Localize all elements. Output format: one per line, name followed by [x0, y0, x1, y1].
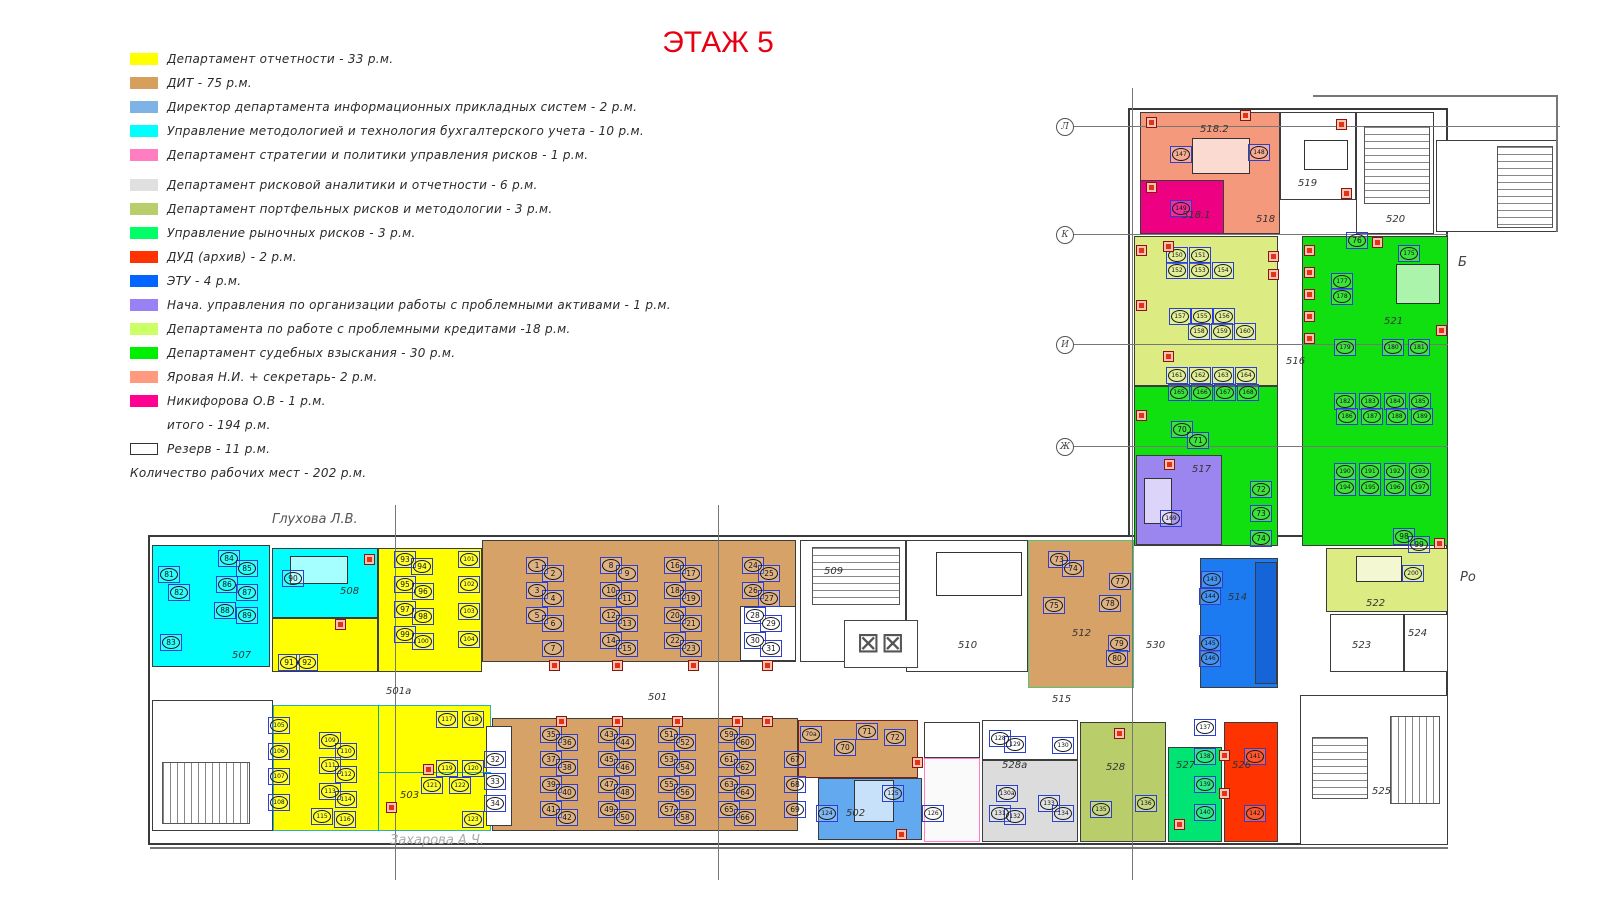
workstation-chip: 71	[1189, 434, 1207, 447]
workstation-chip: 42	[558, 811, 576, 824]
workstation-chip: 87	[238, 586, 256, 599]
workstation-chip: 11	[618, 592, 636, 605]
printer-marker	[423, 764, 434, 775]
meeting-table	[1356, 556, 1402, 582]
workstation-chip: 10	[602, 584, 620, 597]
legend-swatch	[130, 125, 158, 137]
meeting-table	[1396, 264, 1440, 304]
workstation-chip: 1	[528, 559, 546, 572]
workstation-chip: 82	[170, 586, 188, 599]
plan-label: 512	[1072, 628, 1091, 639]
workstation-chip: 99	[396, 628, 414, 641]
plan-label: 503	[400, 790, 419, 801]
workstation-chip: 53	[660, 753, 678, 766]
workstation-chip: 161	[1168, 369, 1186, 382]
workstation-chip: 148	[1250, 146, 1268, 159]
workstation-chip: 145	[1201, 637, 1219, 650]
plan-label: 520	[1386, 214, 1405, 225]
plan-label: 508	[340, 586, 359, 597]
legend-label: Управление методологией и технология бух…	[167, 124, 644, 138]
workstation-chip: 75	[1045, 599, 1063, 612]
workstation-chip: 80	[1108, 652, 1126, 665]
workstation-chip: 38	[558, 761, 576, 774]
legend-item: Департамент стратегии и политики управле…	[130, 148, 671, 162]
workstation-chip: 158	[1190, 325, 1208, 338]
room-126-room	[924, 758, 980, 842]
workstation-chip: 81	[160, 568, 178, 581]
plan-label: Захарова А.Ч.	[390, 833, 484, 848]
workstation-chip: 104	[460, 633, 478, 646]
meeting-table	[936, 552, 1022, 596]
printer-marker	[1136, 245, 1147, 256]
printer-marker	[762, 660, 773, 671]
workstation-chip: 196	[1386, 481, 1404, 494]
workstation-chip: 168	[1239, 386, 1257, 399]
workstation-chip: 85	[238, 562, 256, 575]
workstation-chip: 57	[660, 803, 678, 816]
elevator: ⊠⊠	[844, 620, 918, 668]
workstation-chip: 26	[744, 584, 762, 597]
workstation-chip: 63	[720, 778, 738, 791]
workstation-chip: 19	[682, 592, 700, 605]
workstation-chip: 167	[1216, 386, 1234, 399]
workstation-chip: 97	[396, 603, 414, 616]
workstation-chip: 118	[464, 713, 482, 726]
workstation-chip: 37	[542, 753, 560, 766]
legend-item: ДИТ - 75 р.м.	[130, 76, 671, 90]
workstation-chip: 169	[1162, 512, 1180, 525]
workstation-chip: 157	[1171, 310, 1189, 323]
plan-label: 523	[1352, 640, 1371, 651]
plan-label: 525	[1372, 786, 1391, 797]
legend-item: Яровая Н.И. + секретарь- 2 р.м.	[130, 370, 671, 384]
printer-marker	[556, 716, 567, 727]
workstation-chip: 109	[321, 734, 339, 747]
workstation-chip: 50	[616, 811, 634, 824]
workstation-chip: 133	[1040, 797, 1058, 810]
workstation-chip: 96	[414, 585, 432, 598]
workstation-chip: 74	[1252, 532, 1270, 545]
workstation-chip: 193	[1411, 465, 1429, 478]
legend-label: ДУД (архив) - 2 р.м.	[167, 250, 297, 264]
legend-label: Нача. управления по организации работы с…	[167, 298, 671, 312]
workstation-chip: 33	[486, 775, 504, 788]
workstation-chip: 154	[1214, 264, 1232, 277]
plan-label: 517	[1192, 464, 1211, 475]
printer-marker	[386, 802, 397, 813]
legend-swatch	[130, 323, 158, 335]
workstation-chip: 72	[886, 731, 904, 744]
workstation-chip: 132	[1006, 810, 1024, 823]
legend-label: Количество рабочих мест - 202 р.м.	[130, 466, 366, 480]
legend-item: Управление методологией и технология бух…	[130, 124, 671, 138]
workstation-chip: 51	[660, 728, 678, 741]
workstation-chip: 15	[618, 642, 636, 655]
printer-marker	[1146, 182, 1157, 193]
workstation-chip: 163	[1214, 369, 1232, 382]
plan-label: 528а	[1002, 760, 1027, 771]
workstation-chip: 108	[270, 796, 288, 809]
workstation-chip: 70	[836, 741, 854, 754]
workstation-chip: 111	[321, 759, 339, 772]
legend-label: Директор департамента информационных при…	[167, 100, 637, 114]
workstation-chip: 4	[544, 592, 562, 605]
workstation-chip: 31	[762, 642, 780, 655]
legend-item: Резерв - 11 р.м.	[130, 442, 671, 456]
workstation-chip: 93	[396, 553, 414, 566]
floor-plan-page: ЭТАЖ 5 Департамент отчетности - 33 р.м.Д…	[0, 0, 1600, 900]
workstation-chip: 190	[1336, 465, 1354, 478]
workstation-chip: 147	[1172, 148, 1190, 161]
workstation-chip: 39	[542, 778, 560, 791]
workstation-chip: 49	[600, 803, 618, 816]
legend-label: Яровая Н.И. + секретарь- 2 р.м.	[167, 370, 378, 384]
workstation-chip: 182	[1336, 395, 1354, 408]
workstation-chip: 62	[736, 761, 754, 774]
plan-label: Б	[1458, 255, 1467, 270]
printer-marker	[1336, 119, 1347, 130]
printer-marker	[1114, 728, 1125, 739]
legend-item: Управление рыночных рисков - 3 р.м.	[130, 226, 671, 240]
workstation-chip: 155	[1193, 310, 1211, 323]
legend-swatch	[130, 251, 158, 263]
workstation-chip: 45	[600, 753, 618, 766]
plan-label: 518	[1256, 214, 1275, 225]
workstation-chip: 29	[762, 617, 780, 630]
plan-label: 514	[1228, 592, 1247, 603]
legend-label: Департамента по работе с проблемными кре…	[167, 322, 571, 336]
workstation-chip: 187	[1363, 410, 1381, 423]
workstation-chip: 130	[1054, 739, 1072, 752]
legend-label: Департамент стратегии и политики управле…	[167, 148, 588, 162]
room-yellow-bottom	[273, 705, 491, 831]
workstation-chip: 143	[1203, 573, 1221, 586]
legend-swatch	[130, 419, 158, 431]
legend-label: ДИТ - 75 р.м.	[167, 76, 252, 90]
plan-label: 521	[1384, 316, 1403, 327]
workstation-chip: 35	[542, 728, 560, 741]
workstation-chip: 54	[676, 761, 694, 774]
printer-marker	[335, 619, 346, 630]
printer-marker	[1163, 241, 1174, 252]
printer-marker	[672, 716, 683, 727]
printer-marker	[1240, 110, 1251, 121]
workstation-chip: 102	[460, 578, 478, 591]
workstation-chip: 27	[760, 592, 778, 605]
printer-marker	[1268, 269, 1279, 280]
stairs	[1390, 716, 1440, 804]
workstation-chip: 73	[1252, 507, 1270, 520]
workstation-chip: 188	[1388, 410, 1406, 423]
printer-marker	[1268, 251, 1279, 262]
workstation-chip: 107	[270, 770, 288, 783]
plan-label: 518.1	[1182, 210, 1211, 221]
plan-label: 526	[1232, 760, 1251, 771]
workstation-chip: 20	[666, 609, 684, 622]
legend-label: Никифорова О.В - 1 р.м.	[167, 394, 326, 408]
legend-swatch	[130, 149, 158, 161]
plan-label: 510	[958, 640, 977, 651]
workstation-chip: 67	[786, 753, 804, 766]
workstation-chip: 180	[1384, 341, 1402, 354]
printer-marker	[1136, 300, 1147, 311]
workstation-chip: 136	[1137, 797, 1155, 810]
workstation-chip: 22	[666, 634, 684, 647]
workstation-chip: 138	[1196, 750, 1214, 763]
legend: Департамент отчетности - 33 р.м.ДИТ - 75…	[130, 52, 671, 490]
workstation-chip: 115	[313, 810, 331, 823]
printer-marker	[1219, 750, 1230, 761]
workstation-chip: 78	[1101, 597, 1119, 610]
workstation-chip: 101	[460, 553, 478, 566]
workstation-chip: 178	[1333, 290, 1351, 303]
workstation-chip: 103	[460, 605, 478, 618]
workstation-chip: 116	[336, 813, 354, 826]
stairs	[1364, 126, 1430, 204]
legend-swatch	[130, 299, 158, 311]
workstation-chip: 179	[1336, 341, 1354, 354]
legend-label: Департамент рисковой аналитики и отчетно…	[167, 178, 538, 192]
workstation-chip: 100	[414, 635, 432, 648]
legend-item: Департамент рисковой аналитики и отчетно…	[130, 178, 671, 192]
printer-marker	[364, 554, 375, 565]
workstation-chip: 24	[744, 559, 762, 572]
workstation-chip: 166	[1193, 386, 1211, 399]
workstation-chip: 120	[464, 762, 482, 775]
printer-marker	[912, 757, 923, 768]
plan-label: 519	[1298, 178, 1317, 189]
workstation-chip: 94	[413, 560, 431, 573]
wall-line	[1313, 95, 1558, 97]
workstation-chip: 181	[1410, 341, 1428, 354]
workstation-chip: 142	[1246, 807, 1264, 820]
printer-marker	[1136, 410, 1147, 421]
grid-axis-label: Ж	[1056, 438, 1074, 456]
workstation-chip: 117	[438, 713, 456, 726]
legend-item: Департамента по работе с проблемными кре…	[130, 322, 671, 336]
workstation-chip: 126	[924, 807, 942, 820]
workstation-chip: 153	[1191, 264, 1209, 277]
wall-line	[718, 505, 719, 880]
legend-item: Департамент портфельных рисков и методол…	[130, 202, 671, 216]
workstation-chip: 122	[451, 779, 469, 792]
workstation-chip: 134	[1054, 807, 1072, 820]
printer-marker	[1304, 245, 1315, 256]
printer-marker	[1163, 351, 1174, 362]
workstation-chip: 123	[464, 813, 482, 826]
plan-label: 530	[1146, 640, 1165, 651]
workstation-chip: 68	[786, 778, 804, 791]
workstation-chip: 21	[682, 617, 700, 630]
workstation-chip: 156	[1215, 310, 1233, 323]
wall-line	[378, 705, 379, 831]
workstation-chip: 175	[1400, 247, 1418, 260]
workstation-chip: 98	[414, 610, 432, 623]
workstation-chip: 47	[600, 778, 618, 791]
plan-label: 518.2	[1200, 124, 1229, 135]
room-514b	[1255, 562, 1277, 684]
workstation-chip: 60	[736, 736, 754, 749]
workstation-chip: 70а	[802, 728, 820, 741]
workstation-chip: 55	[660, 778, 678, 791]
workstation-chip: 76	[1348, 234, 1366, 247]
legend-label: Управление рыночных рисков - 3 р.м.	[167, 226, 416, 240]
workstation-chip: 195	[1361, 481, 1379, 494]
workstation-chip: 48	[616, 786, 634, 799]
printer-marker	[612, 660, 623, 671]
workstation-chip: 28	[746, 609, 764, 622]
workstation-chip: 69	[786, 803, 804, 816]
plan-label: 501а	[386, 686, 411, 697]
workstation-chip: 162	[1191, 369, 1209, 382]
workstation-chip: 129	[1006, 738, 1024, 751]
printer-marker	[549, 660, 560, 671]
workstation-chip: 88	[216, 604, 234, 617]
workstation-chip: 32	[486, 753, 504, 766]
legend-item: ЭТУ - 4 р.м.	[130, 274, 671, 288]
legend-swatch	[130, 371, 158, 383]
workstation-chip: 110	[337, 745, 355, 758]
workstation-chip: 194	[1336, 481, 1354, 494]
legend-swatch	[130, 53, 158, 65]
printer-marker	[1174, 819, 1185, 830]
stairs	[1497, 146, 1553, 228]
workstation-chip: 25	[760, 567, 778, 580]
workstation-chip: 152	[1168, 264, 1186, 277]
workstation-chip: 140	[1196, 806, 1214, 819]
printer-marker	[1304, 289, 1315, 300]
workstation-chip: 64	[736, 786, 754, 799]
legend-item: Нача. управления по организации работы с…	[130, 298, 671, 312]
printer-marker	[1304, 311, 1315, 322]
workstation-chip: 17	[682, 567, 700, 580]
workstation-chip: 72	[1252, 483, 1270, 496]
legend-item: Департамент судебных взыскания - 30 р.м.	[130, 346, 671, 360]
workstation-chip: 164	[1237, 369, 1255, 382]
legend-swatch	[130, 203, 158, 215]
workstation-chip: 177	[1333, 275, 1351, 288]
legend-swatch	[130, 443, 158, 455]
workstation-chip: 121	[423, 779, 441, 792]
wall-line	[150, 847, 1448, 849]
workstation-chip: 125	[884, 787, 902, 800]
workstation-chip: 70	[1173, 423, 1191, 436]
workstation-chip: 197	[1411, 481, 1429, 494]
printer-marker	[762, 716, 773, 727]
legend-label: Департамент судебных взыскания - 30 р.м.	[167, 346, 455, 360]
plan-label: 507	[232, 650, 251, 661]
workstation-chip: 52	[676, 736, 694, 749]
workstation-chip: 2	[544, 567, 562, 580]
workstation-chip: 144	[1201, 590, 1219, 603]
workstation-chip: 46	[616, 761, 634, 774]
workstation-chip: 23	[682, 642, 700, 655]
workstation-chip: 192	[1386, 465, 1404, 478]
printer-marker	[612, 716, 623, 727]
workstation-chip: 186	[1338, 410, 1356, 423]
workstation-chip: 6	[544, 617, 562, 630]
wall-line	[1132, 88, 1133, 880]
workstation-chip: 41	[542, 803, 560, 816]
plan-label: Глухова Л.В.	[272, 512, 358, 527]
legend-item: Директор департамента информационных при…	[130, 100, 671, 114]
workstation-chip: 105	[270, 719, 288, 732]
workstation-chip: 185	[1411, 395, 1429, 408]
workstation-chip: 14	[602, 634, 620, 647]
workstation-chip: 3	[528, 584, 546, 597]
printer-marker	[1164, 459, 1175, 470]
workstation-chip: 113	[321, 785, 339, 798]
legend-label: ЭТУ - 4 р.м.	[167, 274, 241, 288]
legend-swatch	[130, 77, 158, 89]
meeting-table	[1192, 138, 1250, 174]
workstation-chip: 83	[162, 636, 180, 649]
workstation-chip: 9	[618, 567, 636, 580]
printer-marker	[1341, 188, 1352, 199]
meeting-table	[1304, 140, 1348, 170]
plan-label: 515	[1052, 694, 1071, 705]
workstation-chip: 99	[1410, 538, 1428, 551]
legend-item: Департамент отчетности - 33 р.м.	[130, 52, 671, 66]
printer-marker	[1436, 325, 1447, 336]
workstation-chip: 90	[284, 572, 302, 585]
legend-label: Департамент портфельных рисков и методол…	[167, 202, 552, 216]
legend-swatch	[130, 347, 158, 359]
legend-item: итого - 194 р.м.	[130, 418, 671, 432]
workstation-chip: 40	[558, 786, 576, 799]
workstation-chip: 119	[438, 762, 456, 775]
printer-marker	[1304, 333, 1315, 344]
workstation-chip: 36	[558, 736, 576, 749]
workstation-chip: 139	[1196, 778, 1214, 791]
workstation-chip: 16	[666, 559, 684, 572]
workstation-chip: 159	[1213, 325, 1231, 338]
workstation-chip: 56	[676, 786, 694, 799]
grid-axis-label: Л	[1056, 118, 1074, 136]
plan-label: 522	[1366, 598, 1385, 609]
legend-item: ДУД (архив) - 2 р.м.	[130, 250, 671, 264]
workstation-chip: 137	[1196, 721, 1214, 734]
workstation-chip: 92	[298, 656, 316, 669]
printer-marker	[1304, 267, 1315, 278]
plan-label: Ро	[1460, 570, 1476, 585]
workstation-chip: 65	[720, 803, 738, 816]
workstation-chip: 8	[602, 559, 620, 572]
workstation-chip: 165	[1170, 386, 1188, 399]
legend-swatch	[130, 395, 158, 407]
plan-label: 501	[648, 692, 667, 703]
stairs	[162, 762, 250, 824]
wall-line	[1072, 234, 1448, 235]
workstation-chip: 146	[1201, 652, 1219, 665]
legend-item: Никифорова О.В - 1 р.м.	[130, 394, 671, 408]
wall-line	[1556, 95, 1558, 232]
workstation-chip: 89	[238, 609, 256, 622]
workstation-chip: 106	[270, 745, 288, 758]
workstation-chip: 191	[1361, 465, 1379, 478]
workstation-chip: 58	[676, 811, 694, 824]
workstation-chip: 160	[1236, 325, 1254, 338]
printer-marker	[1372, 237, 1383, 248]
workstation-chip: 74	[1064, 562, 1082, 575]
workstation-chip: 135	[1092, 803, 1110, 816]
workstation-chip: 13	[618, 617, 636, 630]
workstation-chip: 7	[544, 642, 562, 655]
printer-marker	[896, 829, 907, 840]
printer-marker	[732, 716, 743, 727]
workstation-chip: 43	[600, 728, 618, 741]
workstation-chip: 95	[396, 578, 414, 591]
